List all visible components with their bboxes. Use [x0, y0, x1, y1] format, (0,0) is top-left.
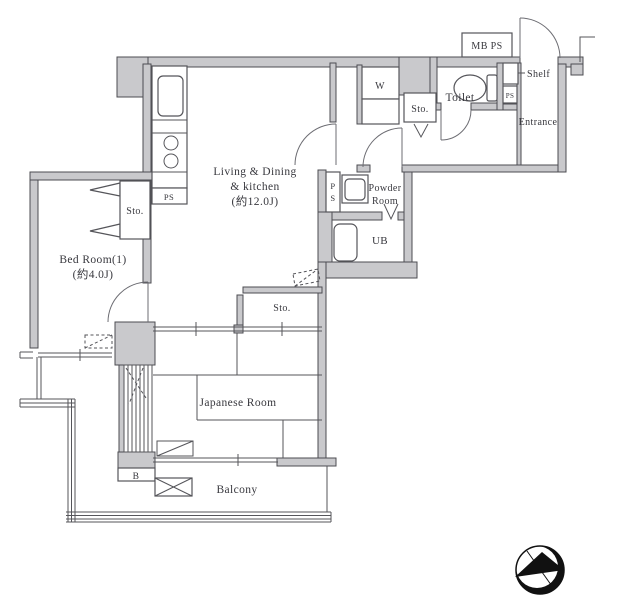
toilet-door-arc [441, 110, 471, 140]
pipe-space-vertical-box [326, 172, 340, 212]
wall-segment [234, 325, 243, 333]
closet-flap [90, 183, 120, 196]
wall-segment [436, 103, 441, 110]
shelf-box [503, 63, 518, 84]
bedroom-label-line2: (約4.0J) [73, 267, 114, 281]
balcony-b-label: B [133, 472, 140, 482]
meter-box-label: MB PS [471, 41, 502, 52]
wall-segment [318, 212, 332, 262]
bathtub [334, 224, 357, 261]
wall-segment [326, 262, 417, 278]
dashed-appliance-box [293, 269, 320, 286]
closet-flap [90, 224, 120, 237]
ldk-door-arc [295, 124, 336, 165]
wall-segment [243, 287, 322, 293]
folding-door-mark [414, 124, 428, 137]
wall-segment [558, 64, 566, 172]
wall-segment [503, 104, 518, 110]
toilet-label: Toilet [445, 92, 474, 104]
kitchen-sink [158, 76, 183, 116]
floor-plan-page: Living & Dining & kitchen (約12.0J) Bed R… [0, 0, 617, 612]
wall-segment [119, 365, 124, 452]
entrance-door-arc [520, 18, 560, 58]
wall-segment [143, 64, 151, 172]
shelf-label: Shelf [527, 69, 550, 80]
wall-segment [118, 452, 155, 468]
pipe-space-small-label: PS [506, 92, 515, 100]
bedroom-storage-label: Sto. [126, 206, 143, 217]
ldk-label-line3: (約12.0J) [232, 194, 279, 208]
dashed-appliance-diagonal [85, 335, 112, 348]
middle-storage-label: Sto. [273, 303, 290, 314]
ub-label: UB [372, 235, 388, 247]
wall-segment [357, 65, 362, 124]
wall-segment [332, 212, 382, 220]
compass-north-icon [515, 546, 564, 594]
wall-segment [30, 172, 152, 180]
ldk-label-line2: & kitchen [230, 181, 279, 193]
balcony-label: Balcony [216, 484, 257, 496]
wall-segment [497, 63, 503, 110]
board-area-diagonal [157, 441, 193, 456]
floor-plan-drawing: Living & Dining & kitchen (約12.0J) Bed R… [0, 0, 617, 612]
wall-segment [571, 64, 583, 75]
japanese-room-label: Japanese Room [199, 397, 276, 409]
wall-segment [398, 212, 404, 220]
bedroom-door-arc [108, 282, 148, 322]
washer-label: W [375, 81, 385, 92]
pipe-space-vertical-top: P [330, 181, 335, 191]
toilet-tank [487, 75, 497, 101]
hall-cabinet-box [362, 99, 399, 124]
hall-storage-label: Sto. [411, 104, 428, 115]
bedroom-label-line1: Bed Room(1) [59, 254, 126, 266]
vanity-sink-basin [345, 179, 365, 200]
pipe-space-kitchen-label: PS [164, 192, 174, 202]
dashed-appliance-box [85, 335, 112, 348]
powder-room-label-line1: Powder [369, 183, 402, 194]
wall-segment [30, 180, 38, 348]
wall-segment [277, 458, 336, 466]
wall-segment [330, 63, 336, 122]
pipe-space-vertical-bottom: S [330, 193, 335, 203]
wall-segment [402, 165, 558, 172]
entrance-label: Entrance [519, 117, 558, 128]
powder-room-label-line2: Room [372, 196, 398, 207]
ldk-label-line1: Living & Dining [213, 166, 296, 178]
wall-segment [115, 322, 155, 365]
hall-door-arc [363, 128, 402, 167]
